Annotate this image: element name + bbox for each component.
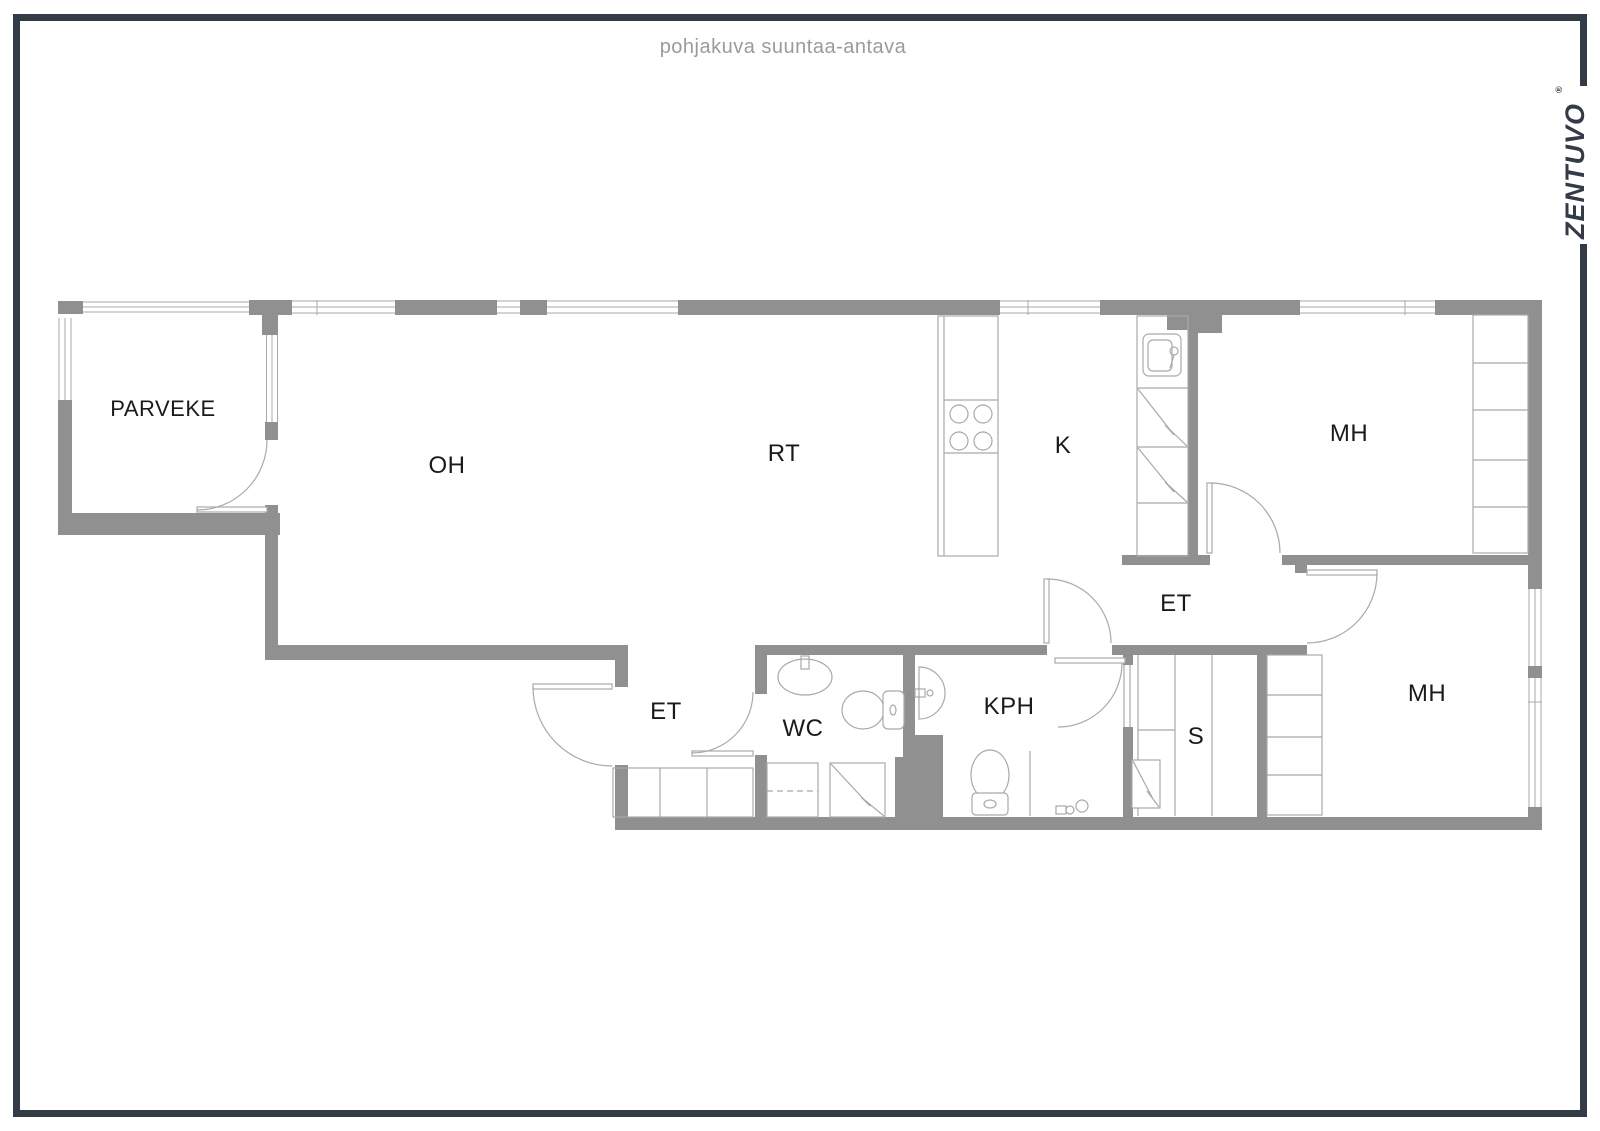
entry-closet	[613, 768, 753, 817]
sauna-heater-icon	[1132, 760, 1160, 808]
sauna-door	[1124, 665, 1130, 727]
kitchen-counter	[1137, 316, 1188, 556]
entry-door	[533, 684, 612, 766]
hall-door	[1044, 579, 1111, 643]
walls	[58, 300, 1542, 830]
window-icon	[1528, 678, 1542, 807]
stove-icon	[950, 405, 992, 450]
room-label-rt: RT	[768, 440, 801, 467]
bedroom1-door	[1207, 483, 1280, 553]
kph-sink-icon	[915, 667, 945, 719]
washing-machine-icon	[830, 763, 885, 817]
wc-sink-icon	[778, 656, 832, 695]
kitchen-island	[938, 316, 998, 556]
wc-cabinet	[767, 763, 818, 817]
brand-logo: ZENTUVO ®	[1554, 86, 1590, 240]
brand-logo-text: ZENTUVO	[1560, 103, 1590, 240]
wc-door	[692, 692, 753, 756]
fridge-icon	[1138, 389, 1187, 446]
room-label-kph: KPH	[984, 693, 1035, 720]
wardrobe-bedroom1	[1473, 315, 1528, 553]
window-icon	[1000, 300, 1100, 315]
room-label-k: K	[1055, 432, 1072, 459]
page-title: pohjakuva suuntaa-antava	[660, 36, 907, 58]
balcony-door	[197, 440, 267, 512]
floorplan-svg: pohjakuva suuntaa-antava ZENTUVO ®	[0, 0, 1600, 1131]
room-label-parveke: PARVEKE	[110, 396, 215, 421]
window-icon	[59, 318, 71, 400]
window-icon	[1529, 589, 1541, 666]
wc-toilet-icon	[842, 691, 904, 729]
room-label-et2: ET	[650, 698, 682, 725]
kph-toilet-icon	[971, 750, 1009, 815]
freezer-icon	[1138, 448, 1187, 502]
room-labels: PARVEKE OH RT K MH ET ET WC KPH S MH	[110, 396, 1446, 750]
window-icon	[292, 300, 395, 315]
wardrobe-bedroom2	[1267, 655, 1322, 815]
floorplan-page: pohjakuva suuntaa-antava ZENTUVO ®	[0, 0, 1600, 1131]
window-icon	[497, 301, 520, 313]
kitchen-sink-icon	[1143, 334, 1181, 376]
window-icon	[547, 301, 678, 313]
balcony-railing	[83, 302, 249, 312]
room-label-wc: WC	[783, 715, 824, 742]
room-label-oh: OH	[429, 452, 466, 479]
kph-door	[1055, 658, 1125, 727]
window-icon	[267, 335, 278, 422]
shower-mixer-icon	[1056, 800, 1088, 814]
bedroom2-door	[1307, 570, 1377, 643]
brand-registered-icon: ®	[1554, 86, 1564, 93]
room-label-et1: ET	[1160, 590, 1192, 617]
page-frame	[13, 14, 1587, 1117]
room-label-s: S	[1188, 723, 1205, 750]
room-label-mh2: MH	[1408, 680, 1446, 707]
room-label-mh1: MH	[1330, 420, 1368, 447]
window-icon	[1300, 300, 1435, 315]
